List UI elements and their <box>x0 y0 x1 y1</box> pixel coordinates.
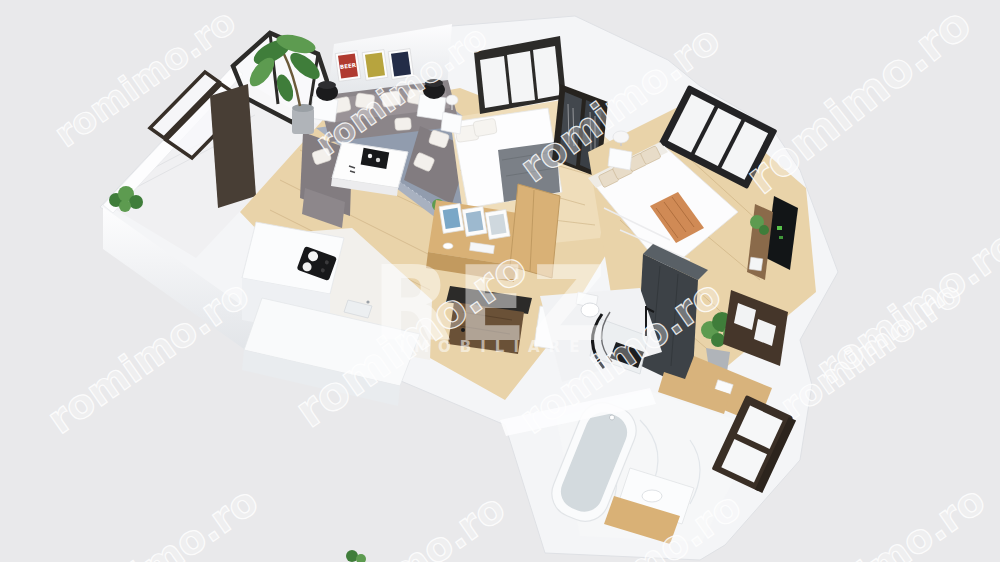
shelf-label <box>749 257 763 271</box>
brand-watermark-subtitle: IMOBILIARE <box>400 338 589 356</box>
floorplan-render: BEER <box>0 0 1000 562</box>
tv-screen-detail <box>779 236 783 239</box>
vanity-sink <box>642 490 662 502</box>
bedside-lamp-icon <box>446 95 458 105</box>
poster-red: BEER <box>335 51 361 82</box>
floorplan-svg: BEER <box>0 0 1000 562</box>
terrace-dark-door-panel <box>210 84 256 208</box>
tv-screen-detail <box>777 226 782 230</box>
shelf-plant-icon <box>759 225 769 235</box>
sink-faucet <box>366 300 369 303</box>
poster-yellow <box>362 50 388 81</box>
